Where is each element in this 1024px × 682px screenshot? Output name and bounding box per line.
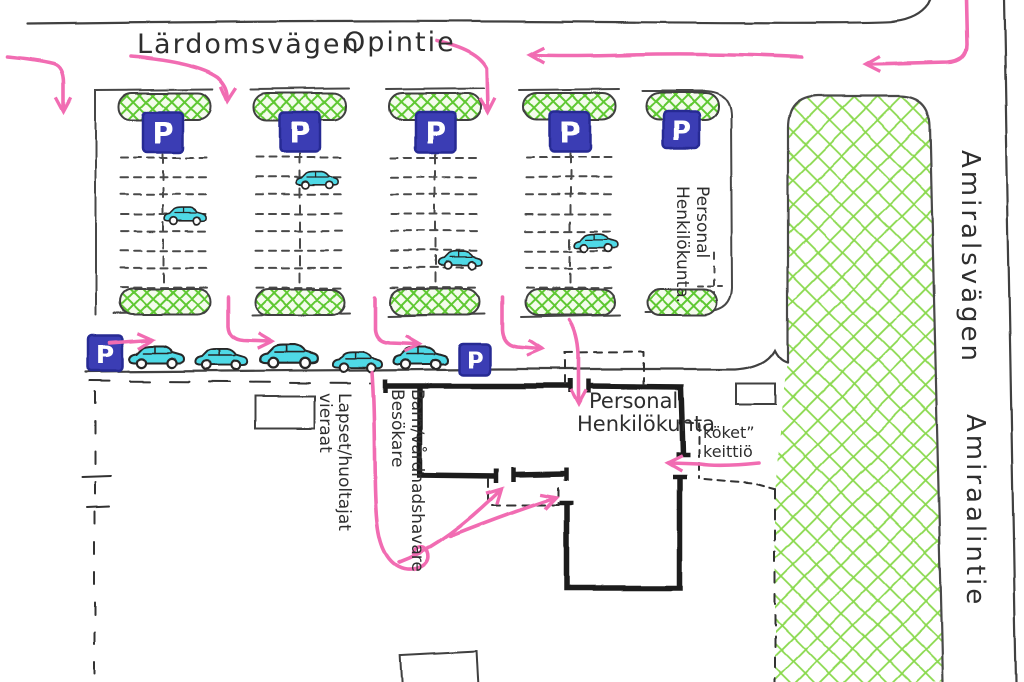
children-label-line2: vieraat — [315, 393, 334, 531]
annex-rect-top-right — [736, 383, 776, 404]
parking-columns: PPPPP — [119, 93, 722, 315]
route-arrow-entry-right — [868, 0, 967, 64]
top-road-edge — [28, 0, 931, 24]
car-icon — [130, 346, 184, 368]
kitchen-label-line2: keittiö — [703, 442, 755, 461]
street-name-amiralsvagen: Amiralsvägen — [955, 150, 985, 364]
parking-sign-letter: P — [671, 117, 690, 147]
kitchen-boundary-2 — [705, 479, 774, 489]
parked-cars — [165, 172, 619, 270]
parking-sign-icon: P — [663, 112, 699, 148]
parking-sign-icon: P — [415, 112, 455, 152]
annex-rect-left — [255, 396, 315, 428]
kitchen-label: köket” keittiö — [703, 423, 755, 461]
parking-sign-letter: P — [559, 116, 580, 150]
map-drawing: PPPPP PP — [0, 0, 1024, 682]
visitors-label-line2: Besökare — [387, 389, 407, 572]
yard-gate-mark-2 — [87, 507, 110, 508]
car-icon — [332, 352, 382, 372]
street-name-amiraalintie: Amiraalintie — [960, 414, 990, 607]
hedge — [525, 289, 615, 315]
car-icon — [297, 172, 339, 189]
route-arrow-top-road — [532, 54, 802, 57]
parking-sign-letter: P — [466, 349, 482, 374]
car-icon — [196, 349, 247, 370]
annex-rect-bottom — [400, 651, 478, 682]
car-icon — [260, 345, 317, 368]
staff-entrance-line1: Personal — [577, 390, 715, 413]
hedge — [120, 289, 210, 315]
route-arrow-entry-left — [8, 57, 64, 110]
parking-sign-icon: P — [143, 112, 183, 152]
visitors-label-line1: Barn/vårdnadshavare — [407, 389, 427, 572]
car-icon — [438, 252, 482, 270]
children-label-line1: Lapset/huoltajat — [334, 393, 353, 531]
children-guardians-fi-label: Lapset/huoltajat vieraat — [315, 393, 353, 531]
green-field — [775, 96, 943, 682]
yard-boundary-top — [90, 381, 370, 383]
route-visitor-arrow-2 — [450, 498, 554, 536]
street-name-opintie: Opintie — [344, 27, 456, 58]
parking-sign-icon: P — [459, 344, 490, 375]
children-guardians-sv-label: Barn/vårdnadshavare Besökare — [387, 389, 427, 572]
parking-sign-letter: P — [424, 116, 445, 150]
car-icon — [394, 347, 448, 369]
parking-sign-letter: P — [152, 116, 173, 150]
site-map: PPPPP PP — [0, 0, 1024, 682]
car-icon — [165, 208, 207, 225]
right-road-edge — [1004, 0, 1016, 682]
staff-parking-label-line1: Personal — [692, 186, 712, 303]
staff-entrance-line2: Henkilökunta — [577, 413, 715, 436]
route-arrow-kitchen — [670, 463, 759, 465]
yard-gate-mark-1 — [82, 476, 111, 477]
hedge — [390, 289, 480, 315]
parking-sign-icon: P — [550, 112, 590, 152]
car-icon — [575, 234, 619, 252]
staff-entrance-label: Personal Henkilökunta — [577, 390, 715, 436]
kitchen-label-line1: köket” — [703, 423, 755, 442]
staff-parking-label-line2: Henkilökunta. — [672, 186, 692, 303]
parking-sign-letter: P — [289, 116, 310, 150]
hedge — [255, 289, 345, 315]
street-name-lardomsvagen: Lärdomsvägen — [137, 29, 361, 60]
staff-parking-label: Personal Henkilökunta. — [672, 186, 712, 303]
parking-sign-icon: P — [280, 112, 320, 152]
